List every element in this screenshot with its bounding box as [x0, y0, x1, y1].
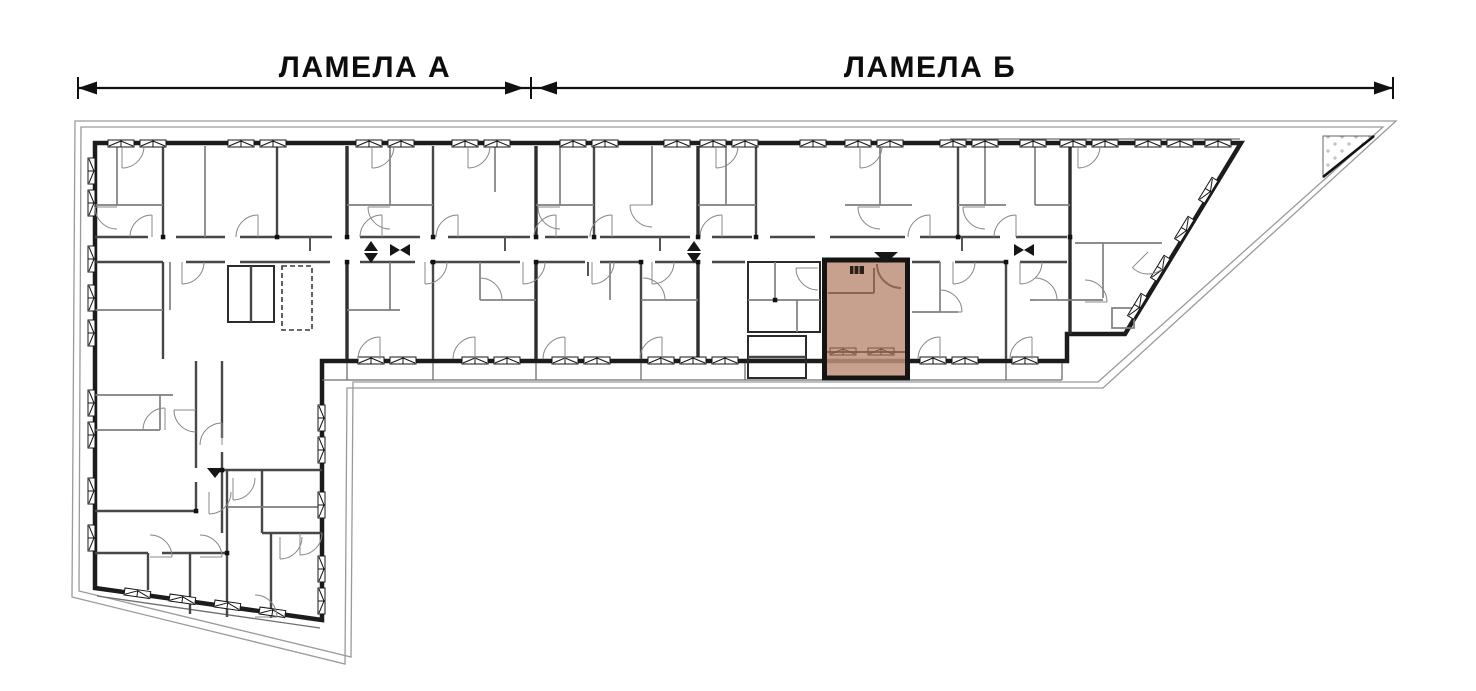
floor-plan: ЛАМЕЛА А ЛАМЕЛА Б [0, 0, 1476, 691]
window-icon [390, 357, 416, 364]
window-icon [228, 140, 254, 147]
window-icon [494, 357, 520, 364]
dimension-header: ЛАМЕЛА А ЛАМЕЛА Б [78, 51, 1393, 99]
window-icon [318, 588, 325, 614]
window-icon [732, 140, 758, 147]
window-icon [318, 405, 325, 431]
window-icon [845, 140, 871, 147]
window-icon [972, 140, 998, 147]
window-icon [318, 492, 325, 518]
section-a-label: ЛАМЕЛА А [279, 51, 451, 84]
window-icon [88, 320, 95, 346]
window-icon [88, 285, 95, 311]
window-icon [452, 140, 478, 147]
dimension-arrow-right [1374, 82, 1393, 95]
dimension-arrow-left [78, 82, 97, 95]
window-icon [260, 140, 286, 147]
window-icon [952, 357, 978, 364]
window-icon [1135, 140, 1161, 147]
window-icon [88, 158, 95, 184]
window-icon [140, 140, 166, 147]
window-icon [648, 357, 674, 364]
window-icon [88, 246, 95, 272]
floor-plan-page: ЛАМЕЛА А ЛАМЕЛА Б [0, 0, 1476, 691]
dimension-arrow-mid-right [505, 82, 524, 95]
window-icon [592, 140, 618, 147]
window-icon [1167, 140, 1193, 147]
section-b-label: ЛАМЕЛА Б [844, 51, 1016, 84]
selected-unit[interactable] [825, 252, 908, 378]
window-icon [1060, 140, 1086, 147]
window-icon [388, 140, 414, 147]
window-icon [88, 390, 95, 416]
window-icon [1012, 357, 1038, 364]
window-icon [664, 140, 690, 147]
window-icon [920, 357, 946, 364]
window-icon [712, 357, 738, 364]
window-icon [1092, 140, 1118, 147]
window-icon [318, 437, 325, 463]
window-icon [700, 140, 726, 147]
window-icon [88, 478, 95, 504]
dimension-arrow-mid-left [538, 82, 557, 95]
window-icon [584, 357, 610, 364]
window-icon [356, 140, 382, 147]
window-icon [88, 422, 95, 448]
window-icon [108, 140, 134, 147]
terrace-triangle [1323, 136, 1374, 177]
window-icon [88, 190, 95, 216]
window-icon [88, 525, 95, 551]
window-icon [484, 140, 510, 147]
window-icon [560, 140, 586, 147]
window-icon [1020, 140, 1046, 147]
window-icon [877, 140, 903, 147]
window-icon [940, 140, 966, 147]
selected-unit-area[interactable] [825, 260, 908, 378]
window-icon [318, 556, 325, 582]
window-icon [680, 357, 706, 364]
window-icon [1205, 140, 1231, 147]
window-icon [800, 140, 826, 147]
